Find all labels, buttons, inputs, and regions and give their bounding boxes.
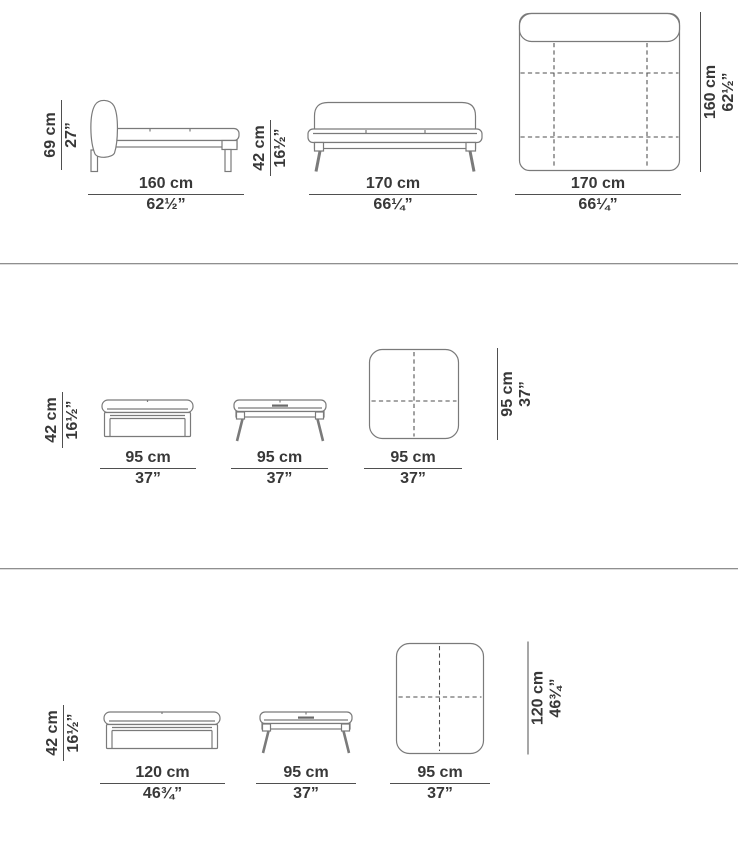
dimension-line [61, 100, 62, 170]
chaise-width-dimension: 160 cm 62½” [88, 175, 244, 214]
dimension-value-cm: 95 cm [499, 348, 517, 440]
dimension-value-in: 62½” [88, 196, 244, 214]
ottoman-width-dimension: 95 cm 37” [100, 449, 196, 488]
dimension-line [528, 642, 529, 755]
dimension-value-in: 46¾” [100, 785, 225, 803]
dimension-value-in: 66¼” [309, 196, 477, 214]
dimension-value-in: 27” [63, 100, 81, 170]
row-ottoman-square: 42 cm 16½” 95 cm 37” 95 cm 37” [0, 265, 738, 568]
bench-side-view-drawing [102, 710, 222, 755]
chaise-front-width-dimension: 170 cm 66¼” [309, 175, 477, 214]
dimension-value-cm: 160 cm [702, 12, 720, 172]
chaise-front-view-drawing [306, 98, 484, 174]
dimension-value-cm: 170 cm [515, 175, 681, 193]
dimension-line [256, 783, 356, 784]
dimension-line [497, 348, 498, 440]
back-leg-outline [225, 150, 231, 172]
bench-width-dimension: 120 cm 46¾” [100, 764, 225, 803]
dimension-sheet: 69 cm 27” 160 cm 62½” 42 cm 16½ [0, 0, 738, 846]
chaise-plan-width-dimension: 170 cm 66¼” [515, 175, 681, 214]
dimension-value-cm: 95 cm [390, 764, 490, 782]
left-leg-outline [237, 419, 243, 441]
bench-depth-dimension: 120 cm 46¾” [527, 642, 567, 755]
dimension-line [88, 194, 244, 195]
dimension-line [390, 783, 490, 784]
dimension-value-cm: 95 cm [256, 764, 356, 782]
dimension-value-cm: 42 cm [43, 392, 61, 448]
dimension-value-cm: 95 cm [364, 449, 462, 467]
bench-front-width-dimension: 95 cm 37” [256, 764, 356, 803]
bench-height-dimension: 42 cm 16½” [44, 705, 84, 761]
ottoman-front-width-dimension: 95 cm 37” [231, 449, 328, 488]
chaise-top-view-drawing [518, 12, 681, 172]
dimension-value-in: 37” [256, 785, 356, 803]
ottoman-front-view-drawing [232, 398, 328, 443]
dimension-value-in: 37” [390, 785, 490, 803]
chaise-side-view-drawing [86, 98, 246, 174]
dimension-line [62, 392, 63, 448]
cushion-seam [298, 717, 314, 719]
dimension-value-in: 16½” [65, 705, 83, 761]
dimension-line [100, 783, 225, 784]
left-leg-outline [316, 151, 320, 172]
dimension-value-cm: 120 cm [100, 764, 225, 782]
right-leg-outline [344, 731, 350, 753]
chaise-height-dimension: 69 cm 27” [42, 100, 82, 170]
ottoman-top-view-drawing [368, 348, 460, 440]
dimension-line [700, 12, 701, 172]
cushion-seam [272, 405, 288, 407]
dimension-value-cm: 160 cm [88, 175, 244, 193]
seat-cushion-outline [308, 129, 482, 143]
frame-rail-outline [113, 141, 237, 148]
row-chaise-longue: 69 cm 27” 160 cm 62½” 42 cm 16½ [0, 0, 738, 263]
dimension-value-in: 37” [517, 348, 535, 440]
dimension-line [364, 468, 462, 469]
dimension-value-cm: 69 cm [42, 100, 60, 170]
dimension-value-cm: 95 cm [100, 449, 196, 467]
frame-rail-outline [315, 143, 476, 149]
backrest-outline [91, 100, 118, 157]
bench-top-view-drawing [395, 642, 485, 755]
dimension-value-in: 37” [231, 470, 328, 488]
chaise-depth-dimension: 160 cm 62½” [699, 12, 738, 172]
dimension-value-cm: 95 cm [231, 449, 328, 467]
dimension-line [270, 120, 271, 176]
dimension-line [309, 194, 477, 195]
row-bench-rectangular: 42 cm 16½” 120 cm 46¾” 95 cm 37” [0, 570, 738, 846]
bench-front-view-drawing [258, 710, 354, 755]
frame-rail-outline [236, 412, 324, 418]
ottoman-height-dimension: 42 cm 16½” [43, 392, 83, 448]
dimension-line [100, 468, 196, 469]
dimension-value-in: 66¼” [515, 196, 681, 214]
dimension-value-cm: 120 cm [530, 642, 548, 755]
left-leg-outline [263, 731, 269, 753]
dimension-value-in: 46¾” [548, 642, 566, 755]
right-leg-outline [318, 419, 324, 441]
dimension-value-cm: 170 cm [309, 175, 477, 193]
dimension-value-in: 16½” [64, 392, 82, 448]
frame-outline [105, 413, 191, 437]
bench-plan-width-dimension: 95 cm 37” [390, 764, 490, 803]
dimension-line [515, 194, 681, 195]
dimension-value-in: 16½” [272, 120, 290, 176]
dimension-value-cm: 42 cm [44, 705, 62, 761]
dimension-line [63, 705, 64, 761]
dimension-value-cm: 42 cm [251, 120, 269, 176]
seat-cushion-outline [110, 129, 239, 141]
ottoman-plan-width-dimension: 95 cm 37” [364, 449, 462, 488]
right-leg-outline [470, 151, 474, 172]
dimension-value-in: 62½” [720, 12, 738, 172]
dimension-value-in: 37” [364, 470, 462, 488]
leg-bracket-outline [222, 141, 237, 150]
ottoman-side-view-drawing [100, 398, 195, 443]
backrest-plan-outline [520, 14, 680, 42]
chaise-seat-height-dimension: 42 cm 16½” [251, 120, 291, 176]
frame-rail-outline [262, 724, 350, 730]
ottoman-depth-dimension: 95 cm 37” [496, 348, 536, 440]
dimension-value-in: 37” [100, 470, 196, 488]
dimension-line [231, 468, 328, 469]
